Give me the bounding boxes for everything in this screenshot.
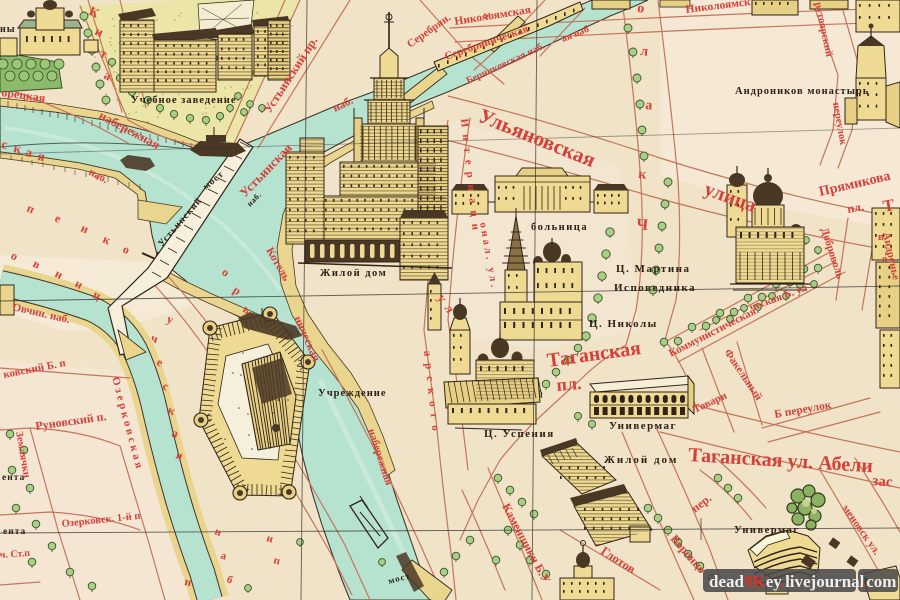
svg-text:.com: .com — [862, 572, 896, 591]
svg-text:ента: ента — [2, 473, 25, 483]
svg-text:Учреждение: Учреждение — [318, 388, 386, 399]
svg-text:Ц. Николы: Ц. Николы — [589, 318, 658, 330]
svg-text:Ч: Ч — [636, 216, 649, 234]
svg-text:Жилой дом: Жилой дом — [320, 268, 387, 279]
svg-text:Универмаг: Универмаг — [734, 525, 800, 536]
svg-text:в: в — [878, 231, 884, 243]
svg-text:больница: больница — [531, 222, 588, 233]
svg-text:Учебное заведение: Учебное заведение — [131, 95, 237, 106]
svg-text:а: а — [645, 98, 653, 114]
svg-text:Ц. Успения: Ц. Успения — [484, 428, 555, 440]
svg-text:Универмаг: Универмаг — [609, 420, 677, 432]
svg-text:о: о — [882, 253, 888, 265]
svg-text:Жилой дом: Жилой дом — [604, 454, 678, 466]
svg-text:пл.: пл. — [556, 373, 583, 395]
svg-text:Исповедника: Исповедника — [614, 282, 696, 294]
svg-text:dead9Key.livejournal: dead9Key.livejournal — [709, 572, 865, 591]
svg-text:пл.: пл. — [846, 199, 865, 216]
svg-text:Ц. Мартина: Ц. Мартина — [616, 263, 691, 275]
svg-text:ны: ны — [0, 24, 16, 35]
svg-text:Андроников монастырь: Андроников монастырь — [735, 86, 869, 97]
svg-text:л: л — [640, 44, 649, 60]
svg-text:ента: ента — [3, 527, 26, 537]
svg-text:ч. Ст.п: ч. Ст.п — [0, 548, 31, 561]
svg-text:зас: зас — [872, 473, 894, 491]
svg-text:о: о — [637, 1, 645, 17]
